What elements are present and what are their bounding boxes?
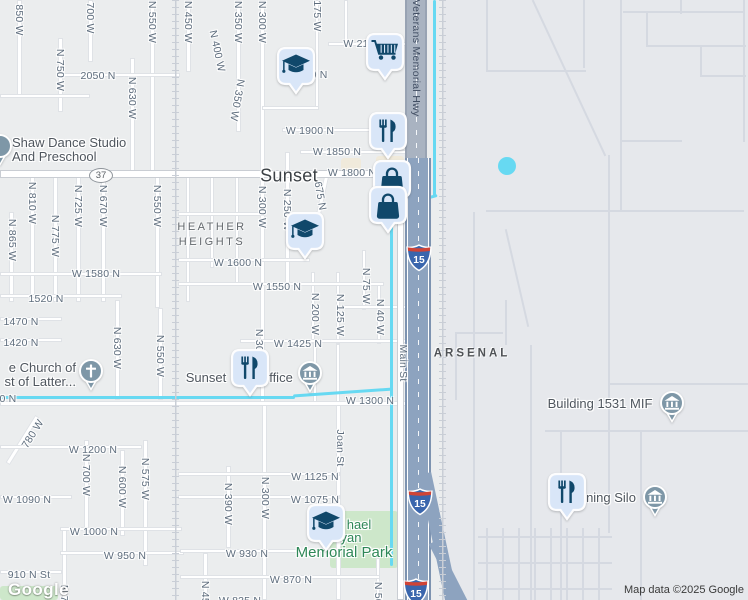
minor-road [262, 106, 319, 110]
street-label: W 1550 N [253, 281, 301, 293]
street-label: N 75 W [360, 268, 372, 304]
shopping-cart-icon [364, 32, 406, 82]
canal [390, 206, 393, 566]
street-label: 1520 N [28, 293, 63, 305]
street-label: N 630 W [111, 327, 123, 369]
thin-road [743, 0, 745, 142]
thin-road [478, 588, 612, 590]
lane-markings [418, 158, 419, 600]
thin-road [473, 212, 475, 600]
route-shield-interstate: 15 [407, 488, 433, 516]
restaurant-icon [367, 111, 409, 161]
street-label: W 835 N [219, 595, 261, 600]
street-label: W 1090 N [3, 494, 51, 506]
route-shield-interstate: 15 [406, 244, 432, 272]
street-label: Main St [397, 345, 409, 382]
arsenal-area [443, 0, 748, 600]
street-label: N 700 W [80, 454, 92, 496]
thin-road [620, 0, 622, 212]
street-label: N 125 W [334, 294, 346, 336]
map-attribution: Map data ©2025 Google [624, 584, 744, 596]
street-label: 0 N [0, 393, 16, 405]
shaw-dance-studio-label: Shaw Dance StudioAnd Preschool [12, 136, 126, 164]
minor-road [58, 73, 180, 77]
thin-road [478, 562, 612, 564]
street-label: 2050 N [80, 70, 115, 82]
street-label: N 550 W [151, 185, 163, 227]
street-label: Veterans Memorial Hwy [410, 0, 422, 117]
street-label: N 550 W [154, 335, 166, 377]
street-label: 1470 N [3, 316, 38, 328]
street-label: W 1200 N [69, 444, 117, 456]
thin-road [680, 0, 682, 14]
main-road [397, 174, 404, 600]
street-label: N 350 W [232, 1, 244, 43]
post-office-label-left: Sunset [186, 371, 226, 385]
thin-road [583, 0, 585, 68]
thin-road [620, 140, 682, 142]
thin-road [545, 430, 748, 432]
street-label: 175 W [311, 0, 323, 31]
thin-road [646, 13, 648, 47]
street-label: W 1125 N [291, 471, 339, 483]
street-label: N 390 W [222, 483, 234, 525]
railroad [439, 0, 446, 600]
building-1531-label: Building 1531 MIF [548, 397, 653, 411]
street-label: W 1900 N [286, 125, 334, 137]
minor-road [336, 344, 340, 404]
street-label: N 630 W [126, 77, 138, 119]
church-label: e Church ofst of Latter... [4, 361, 76, 389]
restaurant-icon [546, 472, 588, 522]
area-label-arsenal: ARSENAL [434, 347, 511, 362]
thin-road [455, 332, 503, 334]
street-label: W 1300 N [346, 395, 394, 407]
street-label: W 1850 N [313, 146, 361, 158]
street-label: W 1580 N [72, 268, 120, 280]
street-label: N 200 W [309, 293, 321, 335]
street-label: W 1000 N [70, 526, 118, 538]
thin-road [610, 383, 748, 385]
street-label: 850 W [13, 4, 25, 35]
thin-road [505, 300, 507, 345]
street-label: N 810 W [26, 182, 38, 224]
street-label: W 950 N [104, 550, 146, 562]
minor-road [0, 94, 90, 98]
street-label: W 930 N [226, 548, 268, 560]
minor-road [178, 212, 266, 216]
street-label: N 775 W [49, 215, 61, 257]
route-shield-interstate: 15 [403, 578, 429, 600]
thin-road [478, 536, 612, 538]
thin-road [700, 75, 746, 77]
street-label: N 450 W [182, 1, 194, 43]
silo-label: ning Silo [586, 491, 636, 505]
thin-road [486, 0, 488, 72]
street-label: N 300 W [256, 186, 268, 228]
street-label: N 550 W [146, 1, 158, 43]
street-label: 700 W [84, 2, 96, 33]
city-label: Sunset [260, 166, 318, 187]
street-label: N 575 W [139, 458, 151, 500]
graduation-cap-icon [284, 211, 326, 261]
street-label: N 750 W [54, 49, 66, 91]
graduation-cap-icon [305, 503, 347, 553]
street-label: W 870 N [270, 574, 312, 586]
graduation-cap-icon [275, 46, 317, 96]
street-label: N 400 W [207, 29, 228, 73]
restaurant-icon [229, 348, 271, 398]
street-label: N 300 W [256, 1, 268, 43]
street-label: N 865 W [6, 219, 18, 261]
area-label-heather: HEATHERHEIGHTS [177, 220, 246, 250]
post-office-label-right: ffice [269, 371, 293, 385]
street-label: W 1800 N [328, 167, 376, 179]
street-label: W 1425 N [274, 338, 322, 350]
street-label: W 1600 N [214, 257, 262, 269]
svg-text:15: 15 [413, 255, 425, 266]
thin-road [486, 70, 586, 72]
thin-road [623, 11, 745, 13]
shopping-bag-icon [367, 185, 409, 235]
street-label: N 300 W [259, 477, 271, 519]
pond [498, 157, 516, 175]
google-logo[interactable]: Google [8, 580, 69, 600]
street-label: N 725 W [72, 185, 84, 227]
route-shield-state: 37 [89, 168, 113, 183]
svg-text:15: 15 [414, 499, 426, 510]
thin-road [455, 332, 457, 400]
street-label: N 350 W [227, 78, 246, 122]
street-label: 1420 N [3, 337, 38, 349]
street-label: N 670 W [97, 185, 109, 227]
street-label: N 50 W [372, 582, 384, 600]
thin-road [648, 45, 746, 47]
map-canvas[interactable]: Google Map data ©2025 Google 850 W700 WN… [0, 0, 748, 600]
thin-road [700, 47, 702, 75]
street-label: Joan St [334, 429, 346, 466]
thin-road [486, 210, 744, 212]
street-label: N 40 W [374, 299, 386, 335]
railroad [172, 0, 179, 600]
street-label: N 600 W [116, 466, 128, 508]
svg-text:15: 15 [410, 589, 422, 600]
canal [433, 0, 436, 196]
street-label: N 450 W [199, 581, 211, 600]
